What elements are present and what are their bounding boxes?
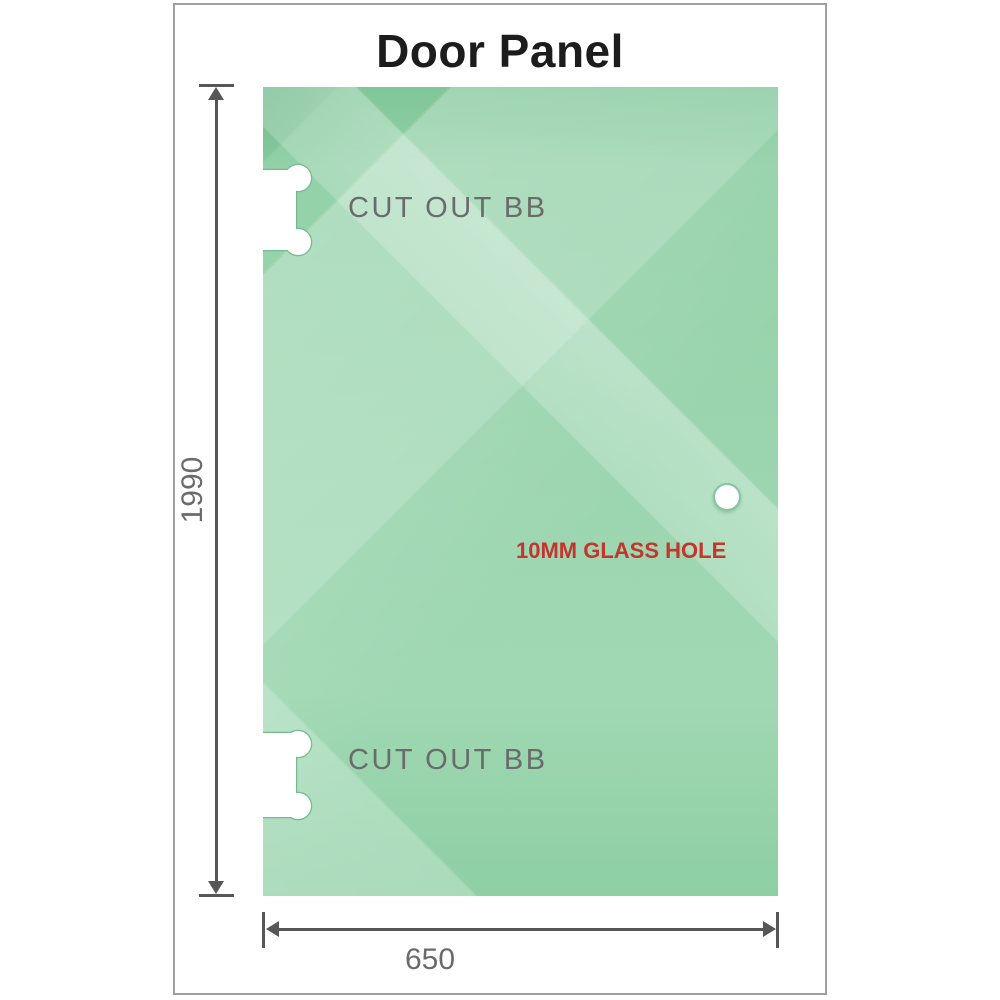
cutout-label-top: CUT OUT BB (348, 192, 548, 225)
width-dim-line (276, 928, 765, 931)
drawing-title: Door Panel (173, 24, 827, 78)
height-dim-line (215, 99, 218, 884)
hinge-cutout-top-icon (263, 158, 319, 262)
hinge-cutout-bottom-icon (263, 723, 319, 827)
width-dim-arrow-right-icon (763, 921, 776, 937)
width-dim-arrow-left-icon (266, 921, 279, 937)
width-dim-tick-left (262, 912, 265, 948)
glass-hole-icon (713, 483, 741, 511)
height-dim-arrow-up-icon (208, 87, 224, 100)
glass-hole-label: 10MM GLASS HOLE (516, 538, 726, 564)
cutout-label-bottom: CUT OUT BB (348, 744, 548, 777)
height-dim-tick-bottom (199, 894, 234, 897)
height-dim-arrow-down-icon (208, 881, 224, 894)
width-dim-tick-right (776, 912, 779, 948)
width-dim-label: 650 (380, 943, 480, 977)
height-dim-label: 1990 (176, 430, 210, 550)
